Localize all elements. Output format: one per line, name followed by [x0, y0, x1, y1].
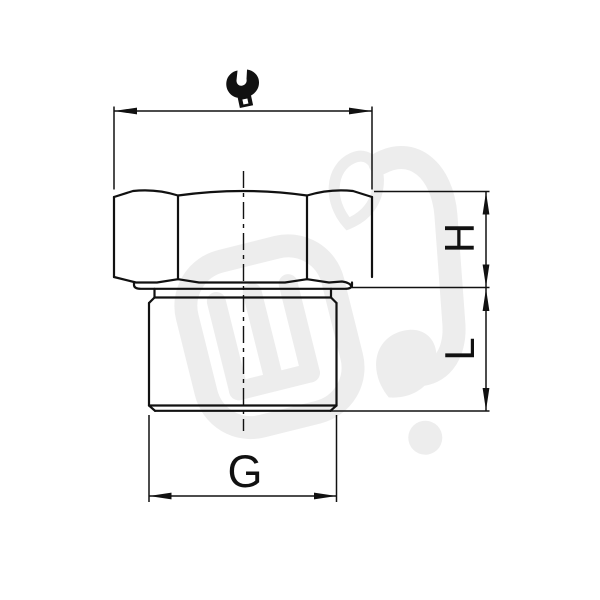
arrow-h-up	[483, 192, 490, 215]
arrow-right	[349, 108, 372, 115]
drawing-canvas: H L G	[0, 0, 600, 600]
wrench-icon	[224, 67, 264, 110]
watermark-trident	[216, 284, 310, 391]
label-hex-height: H	[436, 223, 483, 253]
wrench-square-hole	[242, 98, 250, 106]
arrow-left	[114, 108, 137, 115]
arrow-g-left	[149, 493, 172, 500]
arrow-h-down	[483, 265, 490, 288]
arrow-l-down	[483, 388, 490, 411]
label-thread-length: L	[436, 337, 483, 360]
arrow-g-right	[314, 493, 337, 500]
label-thread-size: G	[227, 446, 262, 497]
technical-drawing: H L G	[0, 0, 600, 600]
arrow-l-up	[483, 289, 490, 312]
